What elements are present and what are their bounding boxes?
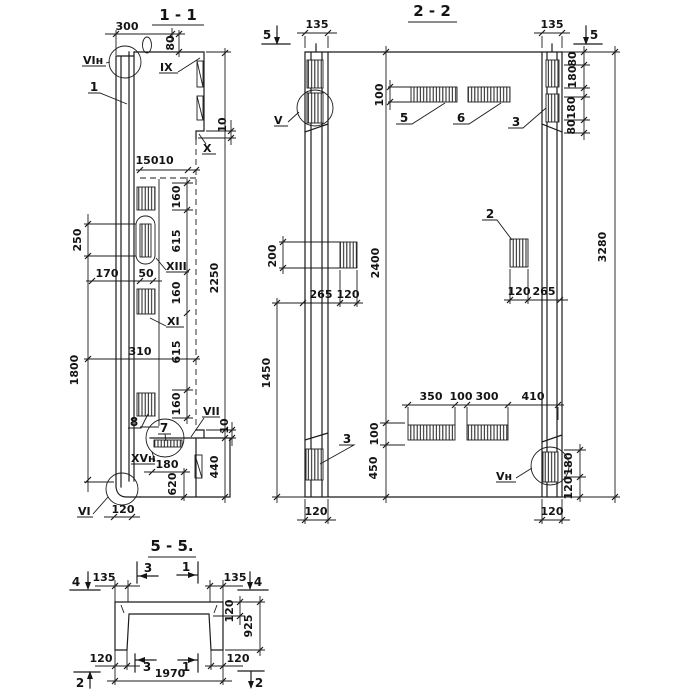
rib-hatch xyxy=(546,94,559,122)
dim-10-b: 10 xyxy=(216,117,229,133)
embed-square-2 xyxy=(510,239,528,267)
part-label-7: 7 xyxy=(160,421,168,435)
dim-100-left: 100 xyxy=(368,422,381,445)
dim-3280: 3280 xyxy=(596,231,609,262)
dim-120-left: 120 xyxy=(337,288,360,301)
dim-120-br: 120 xyxy=(562,476,575,499)
dim-350: 350 xyxy=(420,390,443,403)
dim-265-right: 265 xyxy=(533,285,556,298)
dim-80: 80 xyxy=(164,35,177,51)
cut-label-5-right: 5 xyxy=(590,28,598,42)
dim-180-2: 180 xyxy=(565,96,578,119)
rib-hatch xyxy=(546,60,559,87)
dim-180: 180 xyxy=(156,458,179,471)
label-xvn: XVн xyxy=(131,452,156,465)
dim-135-left: 135 xyxy=(93,571,116,584)
dim-615-2: 615 xyxy=(170,341,183,364)
label-x: X xyxy=(203,142,212,155)
drawing-sheet: 1 - 1 300 80 1 VIн IX 150 10 X 10 160 61… xyxy=(0,0,700,700)
section-view-2-2: 2 - 2 5 5 135 135 100 5 6 3 V Vн 80 180 … xyxy=(260,2,620,524)
embed-hatch xyxy=(137,289,155,314)
dim-200: 200 xyxy=(266,244,279,267)
cut-label-3-top: 3 xyxy=(144,561,152,575)
dim-1450: 1450 xyxy=(260,357,273,388)
dim-120-bot-left: 120 xyxy=(305,505,328,518)
part-label-8: 8 xyxy=(130,415,138,429)
label-vn: Vн xyxy=(496,470,512,483)
dim-120-bot-right: 120 xyxy=(541,505,564,518)
cut-arrow-4-left xyxy=(85,582,91,590)
dim-120-leg-left: 120 xyxy=(90,652,113,665)
rib-hatch xyxy=(307,93,323,123)
dim-615-1: 615 xyxy=(170,230,183,253)
label-xiii: XIII xyxy=(166,260,187,273)
corner-marks xyxy=(121,605,217,613)
dim-620: 620 xyxy=(166,472,179,495)
section-5-5-outline xyxy=(115,602,223,650)
part-label-3-bottom: 3 xyxy=(343,432,351,446)
part-label-5: 5 xyxy=(400,111,408,125)
dim-135-right: 135 xyxy=(541,18,564,31)
dim-440: 440 xyxy=(208,455,221,478)
rib-hatch xyxy=(543,452,558,482)
dim-160-1: 160 xyxy=(170,185,183,208)
section-title-1-1: 1 - 1 xyxy=(159,6,197,24)
leader-lines xyxy=(88,58,206,514)
dim-80-2: 80 xyxy=(565,119,578,135)
section-title-2-2: 2 - 2 xyxy=(413,2,451,20)
section-title-5-5: 5 - 5. xyxy=(150,537,193,555)
dim-180-br: 180 xyxy=(562,452,575,475)
cut-label-3-bottom: 3 xyxy=(143,660,151,674)
label-vi: VI xyxy=(78,505,91,518)
dim-2250: 2250 xyxy=(208,262,221,293)
dim-100-mid: 100 xyxy=(450,390,473,403)
dim-80-1: 80 xyxy=(566,51,579,67)
cut-label-4-right: 4 xyxy=(254,575,262,589)
dim-265-left: 265 xyxy=(310,288,333,301)
channel-outline xyxy=(115,602,223,650)
rib-hatch xyxy=(307,60,323,88)
section-1-1-texts: 1 - 1 300 80 1 VIн IX 150 10 X 10 160 61… xyxy=(68,6,231,518)
cut-arrow-4-right xyxy=(247,582,253,590)
detail-circle-vin xyxy=(109,46,141,78)
dim-410: 410 xyxy=(522,390,545,403)
detail-circle-vi xyxy=(106,473,138,505)
drawing-canvas: 1 - 1 300 80 1 VIн IX 150 10 X 10 160 61… xyxy=(0,0,700,700)
dim-300: 300 xyxy=(116,20,139,33)
oval-inner-hatch xyxy=(140,224,151,257)
dim-10-a: 10 xyxy=(158,154,174,167)
dim-150: 150 xyxy=(136,154,159,167)
label-xi: XI xyxy=(167,315,180,328)
embed-bar-5 xyxy=(411,87,457,102)
dim-170: 170 xyxy=(96,267,119,280)
embed-hatch xyxy=(137,393,155,416)
part-label-2: 2 xyxy=(486,207,494,221)
dim-250: 250 xyxy=(71,228,84,251)
section-view-1-1: 1 - 1 300 80 1 VIн IX 150 10 X 10 160 61… xyxy=(68,6,236,520)
dim-135-left: 135 xyxy=(306,18,329,31)
part-label-6: 6 xyxy=(457,111,465,125)
cut-arrow-2-right xyxy=(248,681,254,689)
section-view-5-5: 5 - 5. 4 4 135 135 3 1 120 925 120 120 3… xyxy=(70,537,268,690)
label-v: V xyxy=(274,114,283,127)
dim-120-right: 120 xyxy=(508,285,531,298)
label-vin: VIн xyxy=(83,54,103,67)
cut-label-2-left: 2 xyxy=(76,676,84,690)
embed-bar xyxy=(408,425,455,440)
dim-1800: 1800 xyxy=(68,354,81,385)
dim-1970: 1970 xyxy=(155,667,186,680)
cut-label-1-top: 1 xyxy=(182,560,190,574)
embed-hatch xyxy=(137,187,155,210)
cut-label-2-right: 2 xyxy=(255,676,263,690)
dim-180-1: 180 xyxy=(566,65,579,88)
dim-50: 50 xyxy=(138,267,154,280)
dim-160-2: 160 xyxy=(170,281,183,304)
part-label-3-top: 3 xyxy=(512,115,520,129)
dim-120: 120 xyxy=(112,503,135,516)
wall-outline xyxy=(116,52,140,497)
rib-hatch xyxy=(306,449,323,480)
dim-135-right: 135 xyxy=(224,571,247,584)
dim-300: 300 xyxy=(476,390,499,403)
cut-label-4-left: 4 xyxy=(72,575,80,589)
dim-100-top: 100 xyxy=(373,83,386,106)
dim-120-slab: 120 xyxy=(223,599,236,622)
dim-160-3: 160 xyxy=(170,392,183,415)
dim-10-c: 10 xyxy=(218,418,231,434)
part-label-1: 1 xyxy=(90,80,98,94)
dim-925: 925 xyxy=(242,615,255,638)
embed-bar-6 xyxy=(468,87,510,102)
dim-310: 310 xyxy=(129,345,152,358)
lifting-loop xyxy=(143,37,152,53)
dim-2400: 2400 xyxy=(369,247,382,278)
dim-450: 450 xyxy=(367,456,380,479)
detail7-hatch xyxy=(154,440,182,447)
label-vii: VII xyxy=(203,405,220,418)
cut-label-5-left: 5 xyxy=(263,28,271,42)
embed-bar xyxy=(467,425,508,440)
label-ix: IX xyxy=(160,61,173,74)
dim-120-leg-right: 120 xyxy=(227,652,250,665)
embed-square xyxy=(340,242,357,268)
